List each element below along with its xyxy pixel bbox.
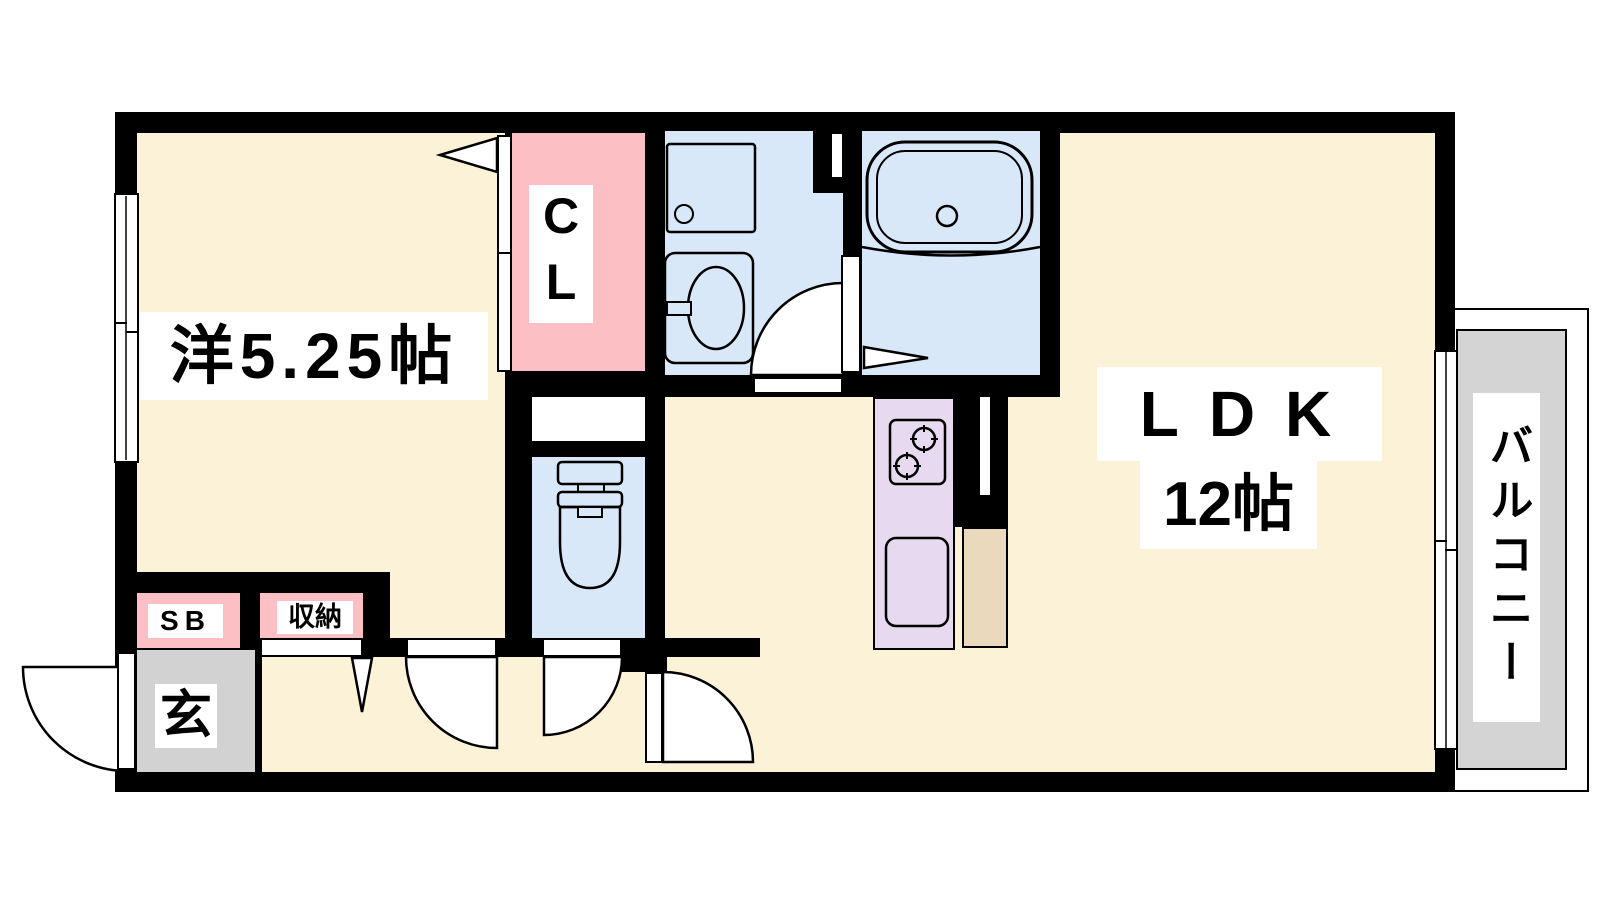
ldk-label: LDK bbox=[1097, 367, 1382, 461]
left-window-sash-marks bbox=[115, 196, 138, 460]
ldk-door-leaf bbox=[645, 672, 663, 763]
entrance-door-arc bbox=[23, 667, 127, 771]
ldk-door-arc bbox=[663, 672, 753, 762]
washroom-sink-icon bbox=[665, 253, 753, 363]
washroom-door-leaf bbox=[841, 255, 861, 373]
washroom-door-arc bbox=[751, 283, 843, 375]
ldk-size-label: 12帖 bbox=[1140, 461, 1317, 549]
storage-label: 収納 bbox=[277, 601, 353, 634]
shoe-box-label: SB bbox=[148, 604, 223, 638]
balcony-label: バルコニー bbox=[1473, 393, 1540, 722]
closet-door-triangle-icon bbox=[440, 138, 497, 172]
entrance-door-leaf bbox=[117, 652, 136, 770]
toilet-door-arc bbox=[544, 657, 622, 735]
storage-door-triangle-icon bbox=[352, 658, 372, 712]
closet-label: CL bbox=[529, 185, 593, 323]
washing-machine-pan-icon bbox=[667, 144, 755, 232]
western-room-label: 洋5.25帖 bbox=[140, 312, 488, 400]
floor-plan: 洋5.25帖 CL LDK 12帖 バルコニー SB 収納 玄 bbox=[0, 0, 1600, 900]
toilet-icon bbox=[558, 462, 622, 588]
kitchen-sink-icon bbox=[886, 538, 948, 626]
balcony-window-sash-marks bbox=[1435, 352, 1457, 748]
bathtub-icon bbox=[867, 142, 1032, 252]
entrance-label: 玄 bbox=[155, 684, 217, 748]
stove-icon bbox=[890, 420, 945, 484]
bath-door-triangle-icon bbox=[864, 347, 928, 368]
western-room-door-arc bbox=[406, 657, 497, 748]
